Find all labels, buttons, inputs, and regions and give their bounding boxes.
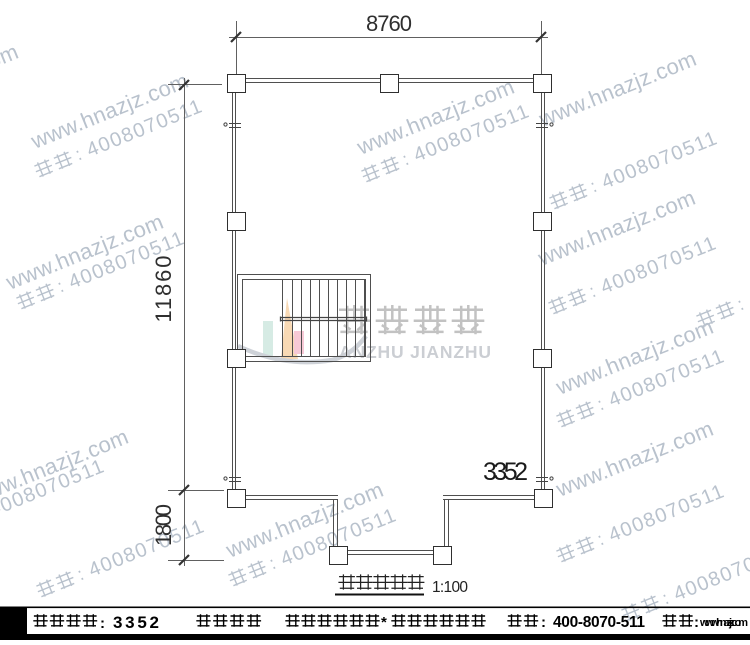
svg-text::: : xyxy=(100,615,105,632)
svg-text:400-8070-511: 400-8070-511 xyxy=(553,614,645,631)
svg-text:ANZHU JIANZHU: ANZHU JIANZHU xyxy=(339,342,491,362)
svg-text:*: * xyxy=(381,614,387,631)
svg-text:1:100: 1:100 xyxy=(432,579,468,596)
svg-text::: : xyxy=(541,614,546,631)
svg-text:11860: 11860 xyxy=(151,256,176,323)
svg-text:8760: 8760 xyxy=(366,11,412,36)
svg-text:www.hnazjz.com: www.hnazjz.com xyxy=(699,617,748,629)
svg-text:3352: 3352 xyxy=(483,458,528,486)
svg-text::: : xyxy=(694,614,699,631)
svg-text:1800: 1800 xyxy=(151,504,176,546)
